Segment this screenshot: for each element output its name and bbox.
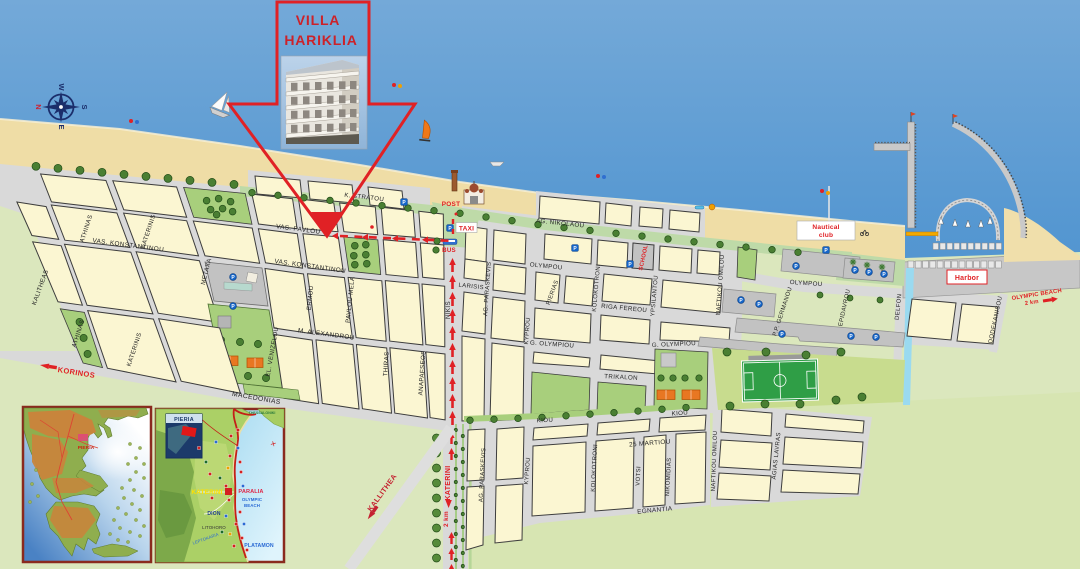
svg-text:LITOHORO: LITOHORO	[202, 525, 226, 530]
svg-text:BUS: BUS	[442, 247, 456, 254]
svg-text:club: club	[819, 232, 833, 239]
svg-text:THESSALONIKI: THESSALONIKI	[249, 411, 276, 415]
svg-text:HARIKLIA: HARIKLIA	[284, 32, 357, 48]
svg-text:PLATAMON: PLATAMON	[244, 543, 274, 549]
svg-text:POST: POST	[442, 201, 461, 208]
svg-text:DION: DION	[207, 511, 220, 517]
svg-text:Nautical: Nautical	[812, 224, 839, 231]
svg-text:KATERINI: KATERINI	[191, 489, 222, 496]
svg-text:BEACH: BEACH	[244, 503, 260, 508]
svg-text:KIOU: KIOU	[536, 417, 553, 425]
svg-text:KIOU: KIOU	[671, 409, 688, 417]
svg-text:KATERINI: KATERINI	[445, 466, 452, 501]
svg-text:OLYMPIC: OLYMPIC	[242, 497, 263, 502]
svg-text:E: E	[57, 124, 66, 129]
svg-text:VILLA: VILLA	[296, 12, 340, 28]
svg-text:2 km: 2 km	[443, 511, 450, 527]
svg-text:S: S	[80, 104, 89, 109]
svg-text:Harbor: Harbor	[955, 275, 979, 282]
svg-text:PIERIA: PIERIA	[78, 445, 95, 451]
svg-text:PARALIA: PARALIA	[238, 489, 263, 495]
svg-text:N: N	[34, 104, 43, 109]
svg-text:NIKIS: NIKIS	[445, 301, 452, 319]
svg-text:W: W	[57, 83, 66, 91]
svg-text:PIERIA: PIERIA	[174, 417, 194, 423]
svg-text:TAXI: TAXI	[459, 226, 474, 233]
svg-text:VOTSI: VOTSI	[635, 466, 642, 486]
